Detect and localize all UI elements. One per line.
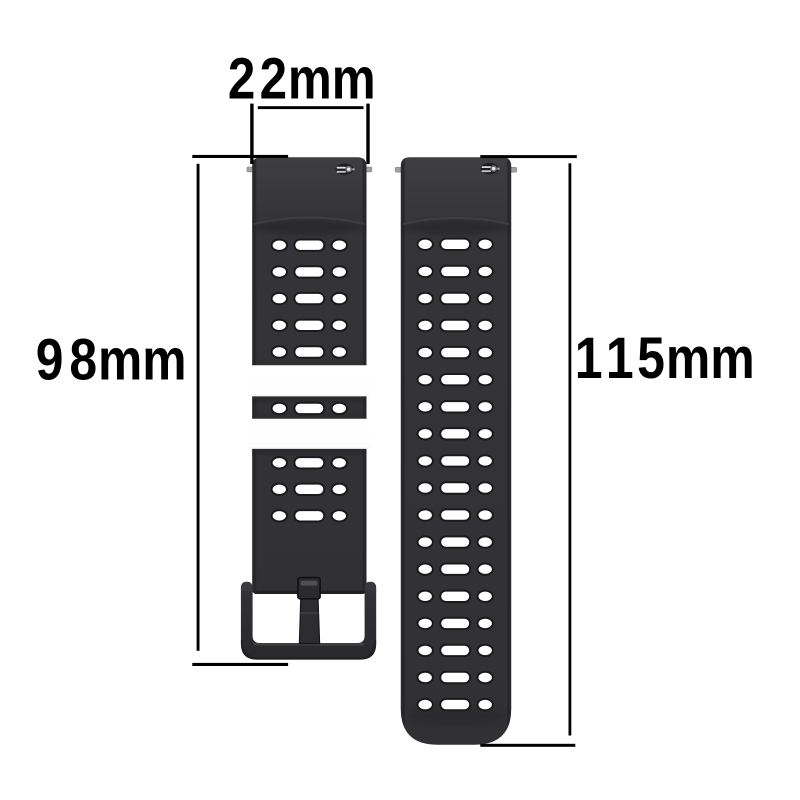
svg-text:115mm: 115mm: [575, 327, 755, 391]
svg-text:22mm: 22mm: [228, 47, 376, 112]
svg-text:98mm: 98mm: [36, 328, 187, 392]
